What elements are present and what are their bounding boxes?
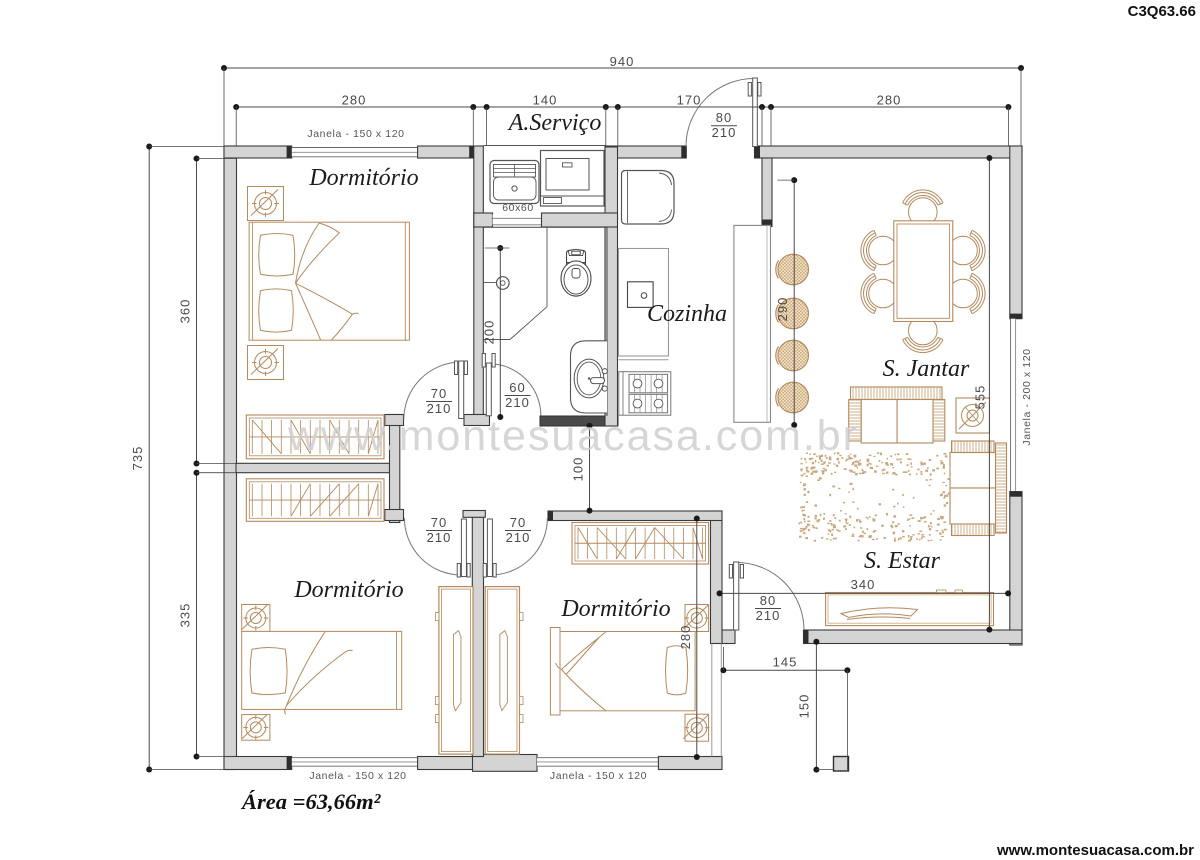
svg-text:280: 280 — [877, 93, 902, 108]
svg-text:150: 150 — [797, 694, 812, 719]
svg-text:290: 290 — [775, 297, 790, 322]
svg-text:Janela - 150 x 120: Janela - 150 x 120 — [307, 128, 404, 140]
svg-text:Dormitório: Dormitório — [293, 577, 403, 603]
svg-text:100: 100 — [571, 457, 586, 482]
svg-text:A.Serviço: A.Serviço — [507, 110, 602, 136]
svg-text:Janela - 150 x 120: Janela - 150 x 120 — [550, 770, 647, 782]
svg-text:140: 140 — [533, 93, 558, 108]
svg-text:80: 80 — [760, 593, 776, 608]
svg-text:145: 145 — [773, 655, 798, 670]
svg-text:360: 360 — [178, 299, 193, 324]
svg-text:Dormitório: Dormitório — [308, 165, 418, 191]
svg-text:70: 70 — [431, 515, 447, 530]
svg-text:60x60: 60x60 — [502, 202, 534, 214]
svg-text:940: 940 — [610, 54, 635, 69]
svg-text:Área =63,66m²: Área =63,66m² — [240, 789, 382, 814]
svg-text:70: 70 — [510, 515, 526, 530]
svg-text:70: 70 — [431, 386, 447, 401]
svg-text:C3Q63.66: C3Q63.66 — [1128, 3, 1196, 20]
svg-text:Dormitório: Dormitório — [560, 596, 670, 622]
svg-text:www.montesuacasa.com.br: www.montesuacasa.com.br — [287, 412, 858, 460]
svg-text:210: 210 — [712, 125, 737, 140]
svg-text:80: 80 — [716, 110, 732, 125]
svg-text:340: 340 — [851, 577, 876, 592]
svg-text:335: 335 — [178, 603, 193, 628]
svg-text:280: 280 — [678, 625, 693, 650]
svg-text:Janela - 150 x 120: Janela - 150 x 120 — [309, 770, 406, 782]
svg-text:210: 210 — [506, 530, 531, 545]
svg-text:Janela - 200 x 120: Janela - 200 x 120 — [1021, 348, 1033, 445]
svg-text:170: 170 — [677, 93, 702, 108]
svg-text:555: 555 — [973, 385, 988, 410]
svg-text:280: 280 — [342, 93, 367, 108]
svg-text:60: 60 — [509, 380, 525, 395]
svg-text:210: 210 — [427, 530, 452, 545]
svg-text:735: 735 — [130, 446, 145, 471]
svg-text:S. Estar: S. Estar — [864, 548, 941, 574]
svg-text:210: 210 — [756, 608, 781, 623]
svg-text:S. Jantar: S. Jantar — [883, 356, 970, 382]
svg-text:www.montesuacasa.com.br: www.montesuacasa.com.br — [996, 842, 1194, 859]
svg-text:Cozinha: Cozinha — [647, 301, 727, 327]
svg-text:210: 210 — [505, 395, 530, 410]
svg-text:200: 200 — [482, 320, 497, 345]
